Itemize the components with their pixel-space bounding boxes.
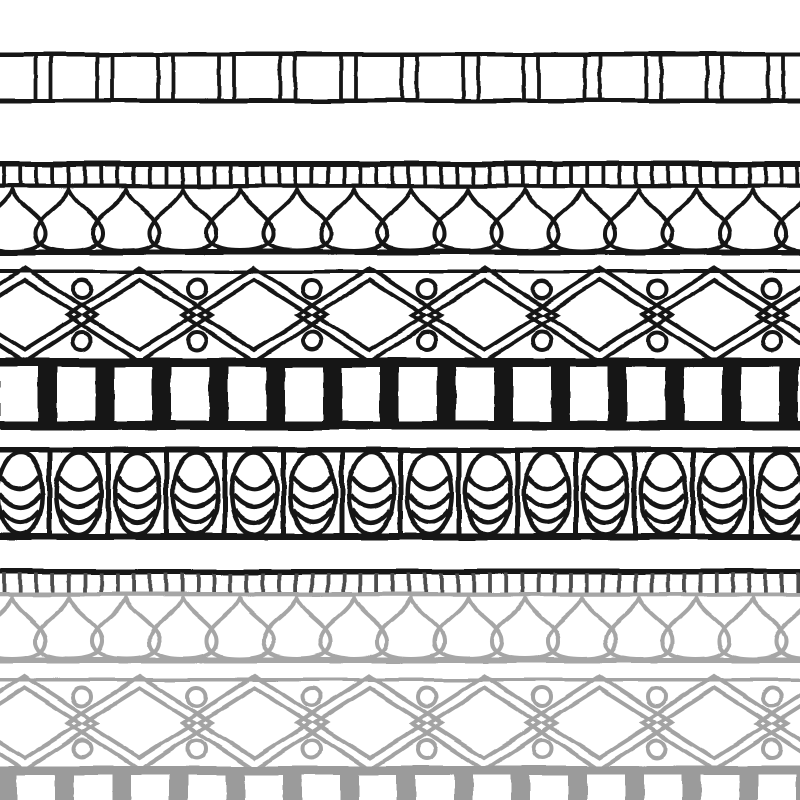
- lotus-band-faded: [0, 569, 800, 663]
- block-band-faded: [0, 766, 800, 800]
- egg-band: [0, 447, 800, 540]
- lotus-band: [0, 161, 800, 255]
- ornamental-pattern-image: [0, 0, 800, 800]
- lattice-band: [0, 268, 800, 362]
- plank-band: [0, 52, 800, 103]
- pattern-canvas: [0, 0, 800, 800]
- lattice-band-faded: [0, 676, 800, 770]
- block-band: [0, 358, 800, 430]
